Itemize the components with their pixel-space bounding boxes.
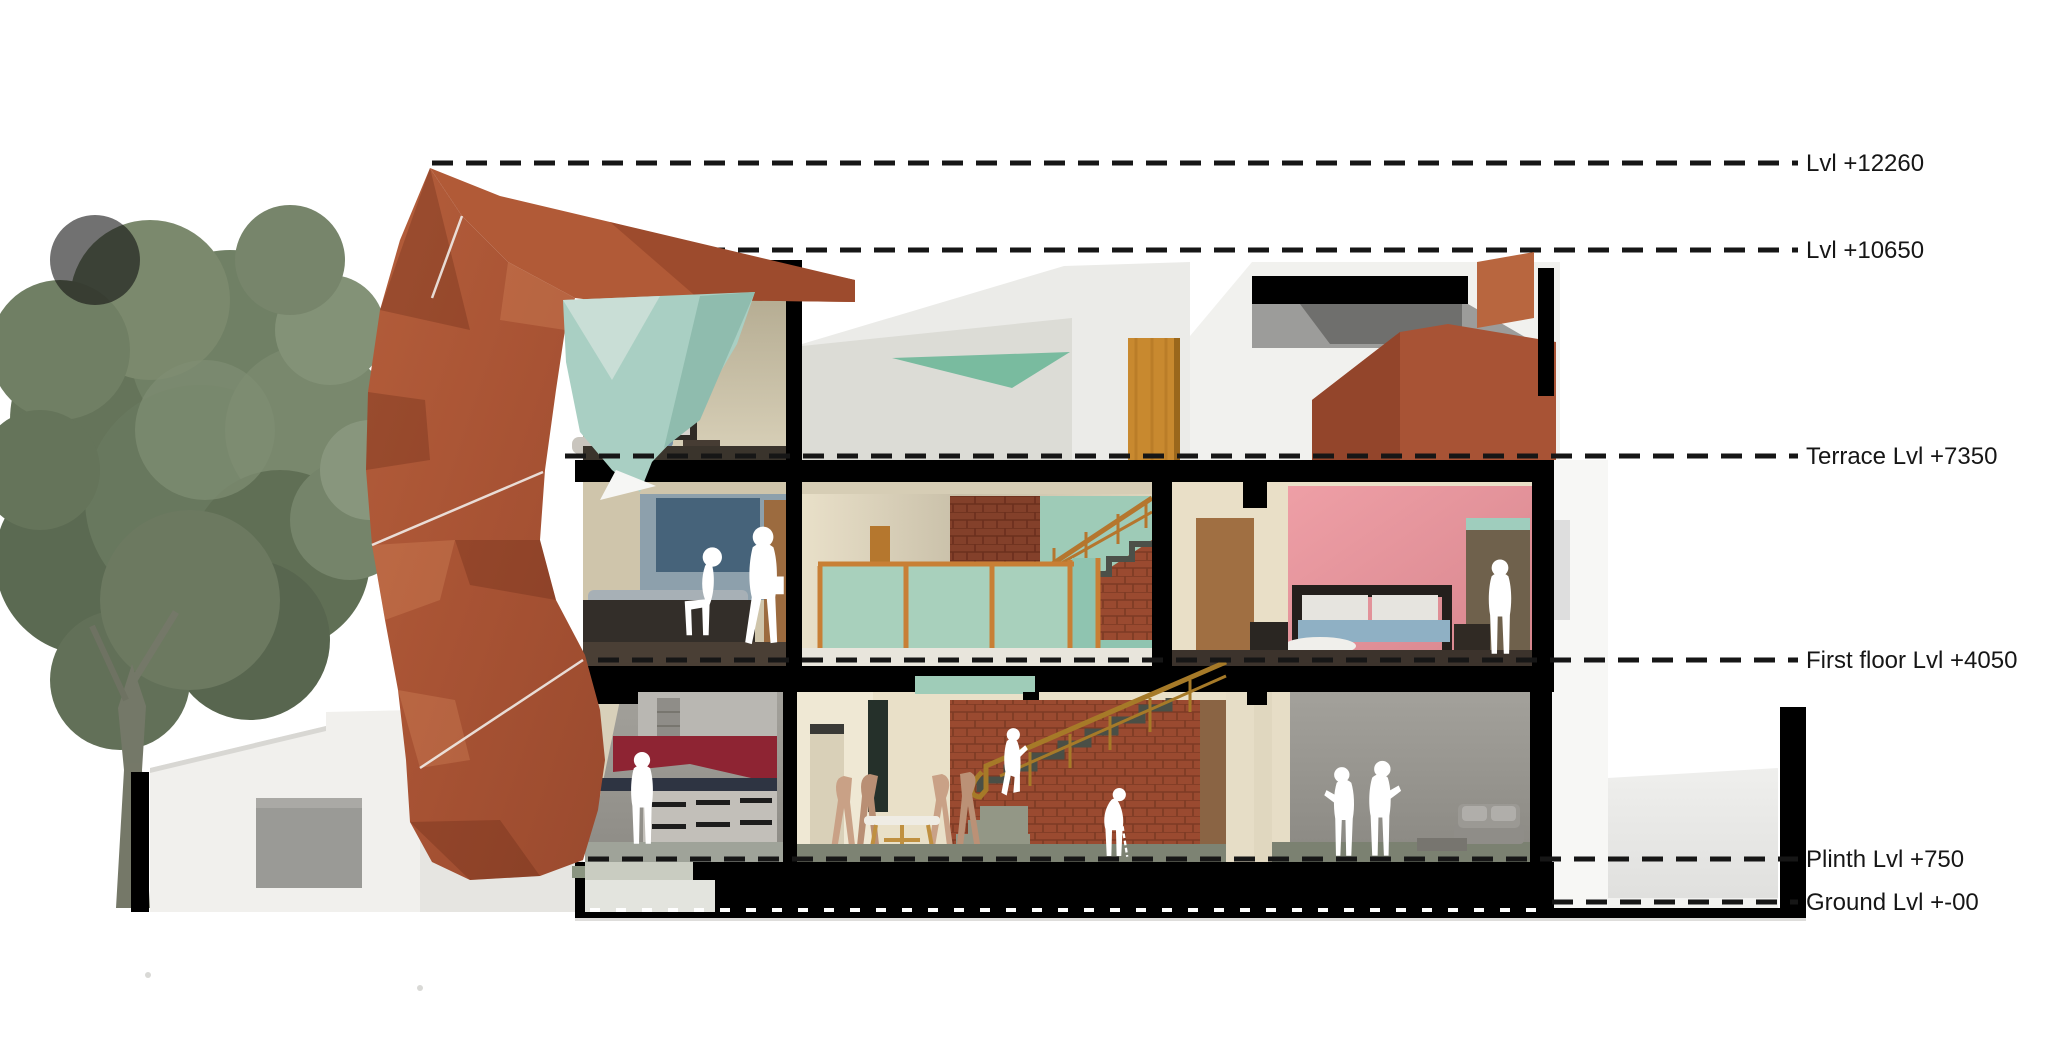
master-bedroom [1172,482,1532,666]
master-door [1196,518,1254,652]
wall-cut-mid [1152,482,1172,666]
understair-panel [1200,700,1226,862]
bed-first-floor [583,590,755,642]
terrace-door [1128,338,1180,460]
planter [256,798,362,888]
level-label-ground: Ground Lvl +-00 [1806,889,1979,916]
dining-area [797,662,1226,862]
wall-cut-right [1532,482,1554,666]
courtyard-right-wall [1780,707,1806,918]
ground-mark [145,972,151,978]
level-label-terrace: Terrace Lvl +7350 [1806,443,1997,470]
section-drawing: Lvl +12260 Lvl +10650 Terrace Lvl +7350 … [0,0,2048,1041]
kitchen [585,692,783,862]
first-floor-bedroom [583,482,786,666]
level-label-10650: Lvl +10650 [1806,237,1924,264]
kitchen-counter [598,778,777,791]
level-label-plinth: Plinth Lvl +750 [1806,846,1964,873]
stair-hall [802,482,1152,666]
first-floor-slab [575,666,1554,692]
terrace-slab [575,460,1554,482]
courtyard-wall [1608,768,1778,898]
ground-floor [585,662,1552,862]
gate-post [131,772,149,912]
level-label-first-floor: First floor Lvl +4050 [1806,647,2017,674]
mint-parapet [818,558,1100,648]
section-drawing-canvas: Lvl +12260 Lvl +10650 Terrace Lvl +7350 … [0,0,2048,1041]
first-floor [583,482,1554,666]
living-room [1226,692,1530,862]
roof-fin-orange [1477,252,1534,328]
level-label-12260: Lvl +12260 [1806,150,1924,177]
ground-mark [417,985,423,991]
